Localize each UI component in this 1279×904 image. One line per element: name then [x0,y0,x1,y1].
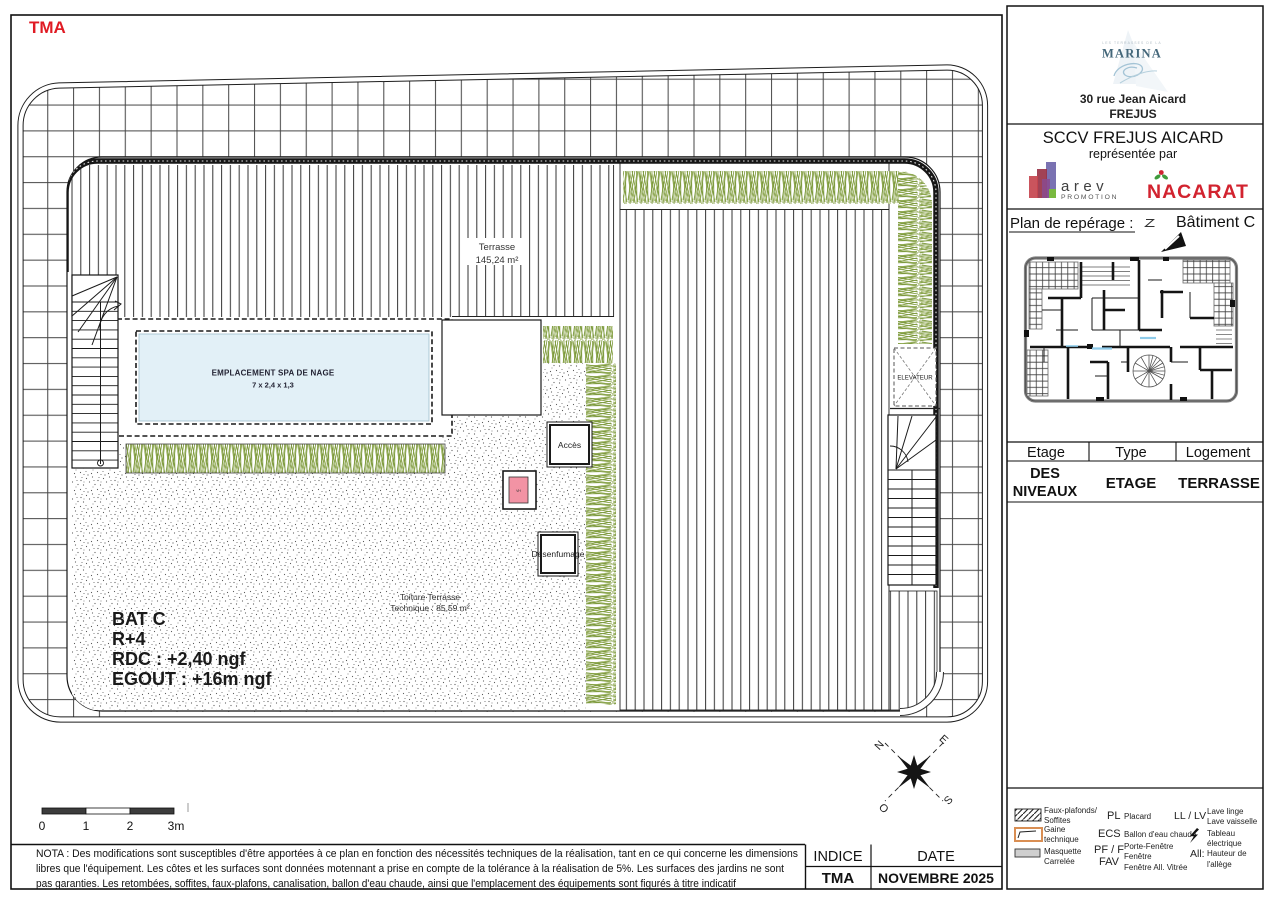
svg-text:Gaine: Gaine [1044,825,1066,834]
svg-text:DES: DES [1030,466,1060,482]
svg-text:BAT C: BAT C [112,609,166,629]
svg-text:Ballon d'eau chaude: Ballon d'eau chaude [1124,830,1197,839]
svg-text:7 x 2,4 x 1,3: 7 x 2,4 x 1,3 [252,381,294,390]
svg-text:représentée par: représentée par [1089,147,1177,161]
svg-text:NIVEAUX: NIVEAUX [1013,484,1078,500]
svg-text:TMA: TMA [29,18,66,37]
svg-text:Etage: Etage [1027,445,1065,461]
svg-text:S: S [942,794,956,808]
svg-text:ETAGE: ETAGE [1106,475,1157,492]
svg-text:Carrelée: Carrelée [1044,857,1075,866]
svg-text:Logement: Logement [1186,445,1251,461]
svg-text:E: E [937,733,950,747]
svg-text:Bâtiment C: Bâtiment C [1176,214,1255,231]
svg-text:Accès: Accès [558,440,581,450]
svg-text:LES TERRASSES DE LA: LES TERRASSES DE LA [1102,41,1161,45]
svg-text:EGOUT : +16m ngf: EGOUT : +16m ngf [112,669,273,689]
svg-text:SCCV FREJUS AICARD: SCCV FREJUS AICARD [1043,129,1224,147]
svg-text:Tableau: Tableau [1207,829,1235,838]
svg-text:2: 2 [127,819,134,833]
svg-text:Placard: Placard [1124,812,1151,821]
svg-text:Lave linge: Lave linge [1207,807,1244,816]
svg-text:All:: All: [1190,848,1205,860]
svg-text:30 rue Jean Aicard: 30 rue Jean Aicard [1080,92,1186,106]
svg-text:Fenêtre: Fenêtre [1124,852,1152,861]
svg-text:Toiture Terrasse: Toiture Terrasse [400,592,461,602]
svg-text:N: N [873,739,887,753]
svg-text:3m: 3m [168,819,185,833]
svg-text:technique: technique [1044,835,1079,844]
svg-text:pas garanties. Les retombées,: pas garanties. Les retombées, soffites, … [36,878,737,890]
svg-text:MARINA: MARINA [1102,47,1162,61]
svg-text:RDC : +2,40 ngf: RDC : +2,40 ngf [112,649,247,669]
svg-text:FAV: FAV [1099,856,1120,868]
svg-text:Fenêtre All. Vitrée: Fenêtre All. Vitrée [1124,863,1188,872]
svg-text:INDICE: INDICE [813,849,862,865]
svg-text:ECS: ECS [1098,828,1121,840]
svg-text:145,24 m²: 145,24 m² [476,255,519,266]
svg-text:Faux-plafonds/: Faux-plafonds/ [1044,806,1098,815]
svg-text:PF / F: PF / F [1094,844,1124,856]
svg-text:libres que l'équipement. Les c: libres que l'équipement. Les côtes et le… [36,863,785,875]
svg-text:ELEVATEUR: ELEVATEUR [897,375,933,382]
svg-text:Terrasse: Terrasse [479,242,515,253]
svg-text:0: 0 [39,819,46,833]
svg-text:TMA: TMA [822,870,855,887]
svg-text:VH: VH [516,489,521,493]
svg-text:Masquette: Masquette [1044,847,1082,856]
svg-text:Porte-Fenêtre: Porte-Fenêtre [1124,842,1174,851]
svg-text:LL / LV: LL / LV [1174,810,1206,822]
svg-text:DATE: DATE [917,849,955,865]
svg-text:O: O [876,801,891,816]
svg-text:Plan de repérage :: Plan de repérage : [1010,215,1133,232]
svg-text:Hauteur de: Hauteur de [1207,849,1247,858]
svg-text:Technique : 85,59 m²: Technique : 85,59 m² [390,603,470,613]
svg-text:Désenfumage: Désenfumage [532,549,585,559]
svg-text:TERRASSE: TERRASSE [1178,475,1260,492]
svg-text:Lave vaisselle: Lave vaisselle [1207,817,1258,826]
svg-text:Type: Type [1115,445,1146,461]
svg-text:1: 1 [83,819,90,833]
svg-text:EMPLACEMENT SPA DE NAGE: EMPLACEMENT SPA DE NAGE [212,369,335,378]
svg-text:NACARAT: NACARAT [1147,181,1249,203]
svg-text:Soffites: Soffites [1044,816,1071,825]
svg-text:PL: PL [1107,810,1120,822]
svg-text:NOVEMBRE 2025: NOVEMBRE 2025 [878,870,994,886]
svg-text:FREJUS: FREJUS [1109,107,1156,121]
svg-text:arev: arev [1061,178,1108,195]
svg-text:électrique: électrique [1207,839,1242,848]
svg-text:R+4: R+4 [112,629,146,649]
svg-text:l'allège: l'allège [1207,860,1232,869]
svg-text:NOTA : Des modifications sont: NOTA : Des modifications sont susceptibl… [36,848,798,860]
svg-text:PROMOTION: PROMOTION [1061,194,1118,201]
